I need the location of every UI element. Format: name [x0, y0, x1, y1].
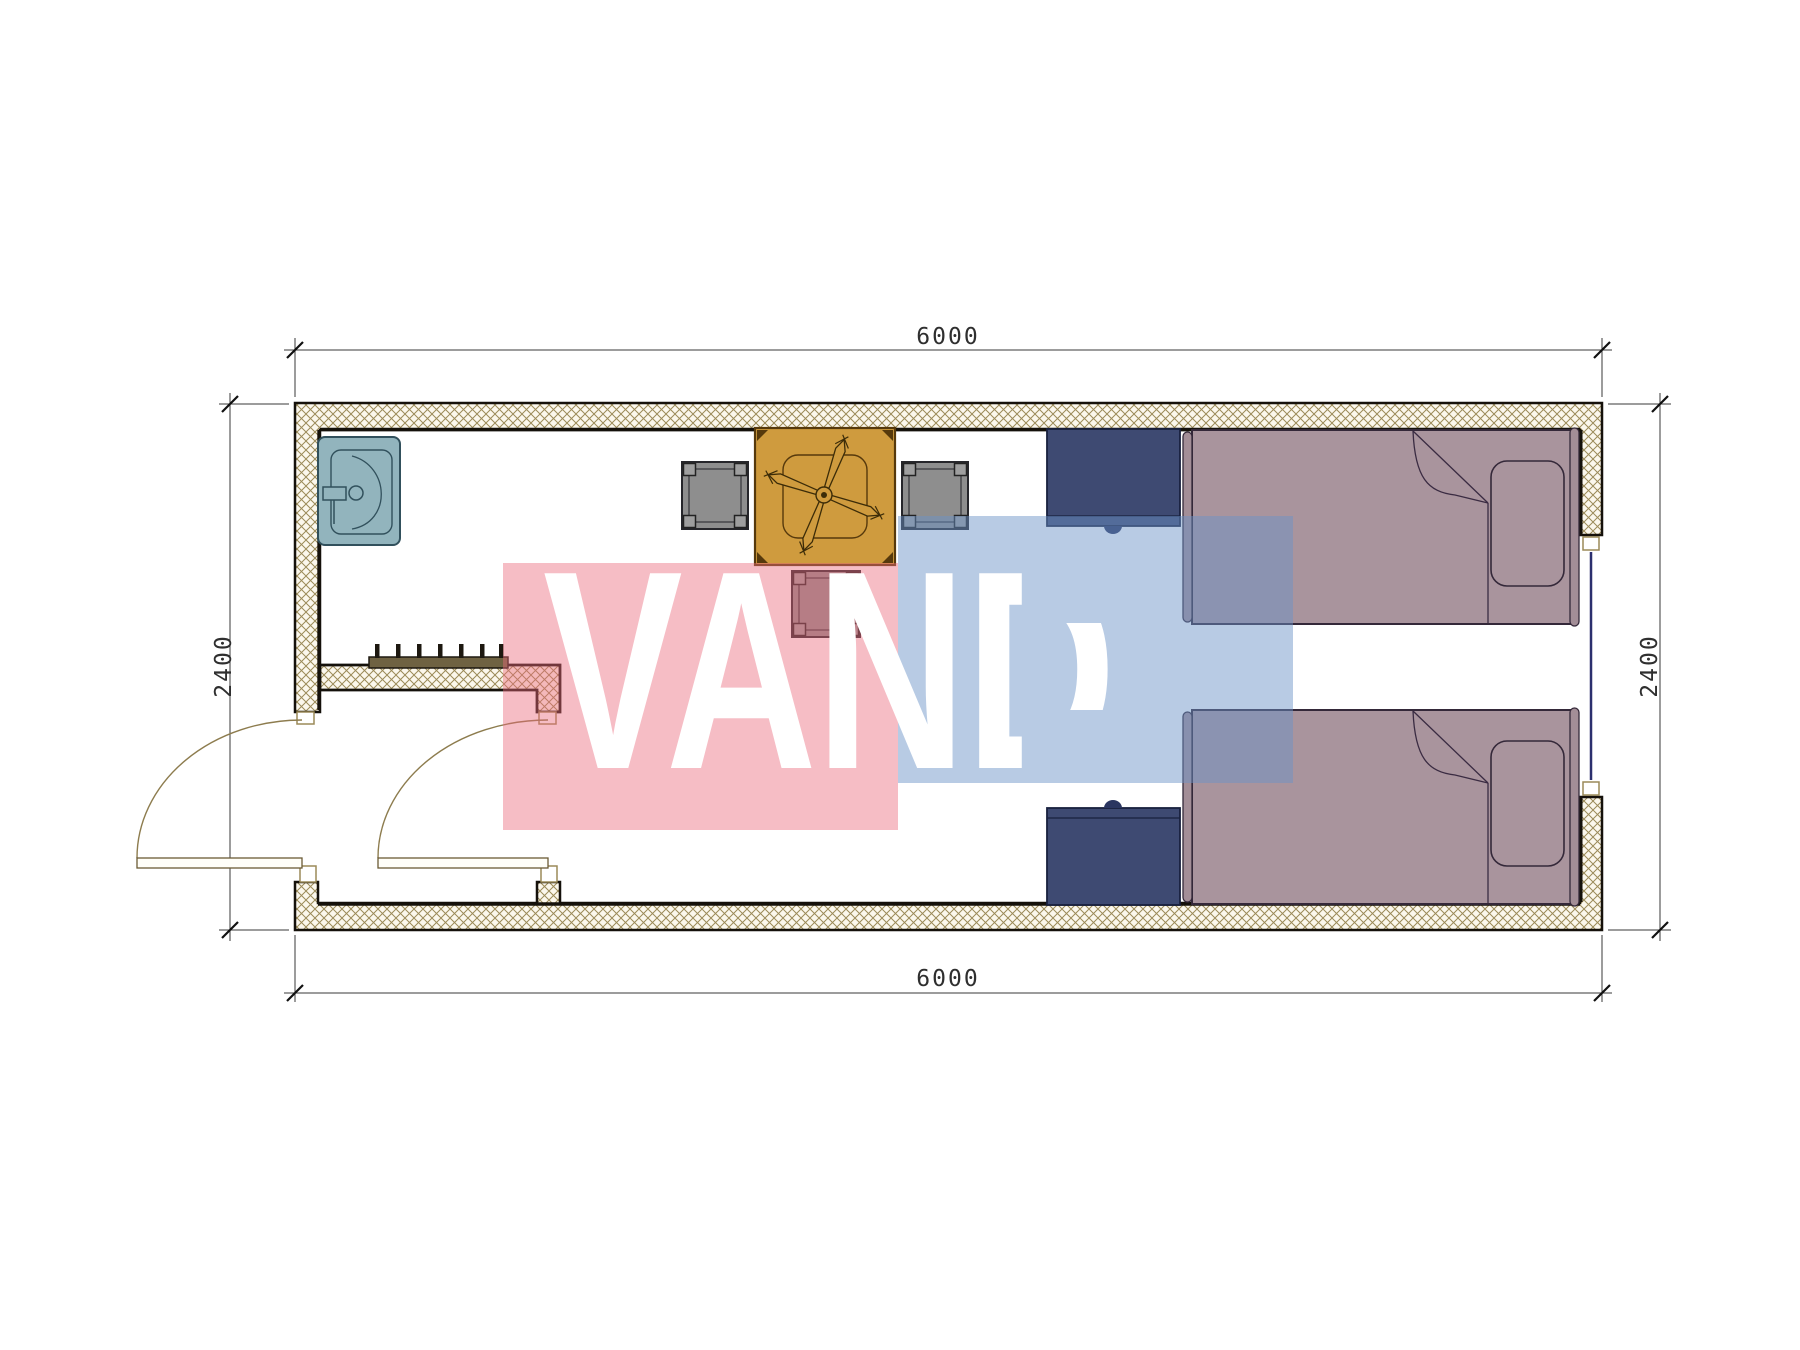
door-swing-arc-left	[137, 720, 302, 858]
pillow-icon	[1491, 461, 1564, 586]
door-icon	[137, 858, 302, 868]
dimension-label-right: 2400	[1637, 616, 1663, 716]
dimension-label-bottom: 6000	[898, 966, 998, 992]
nightstand-icon	[1047, 800, 1180, 905]
doors	[137, 720, 548, 868]
coat-rack-icon	[369, 644, 508, 668]
door-icon	[378, 858, 548, 868]
dimension-label-top: 6000	[898, 324, 998, 350]
sink-icon	[318, 437, 400, 545]
floor-plan-canvas: 6000 6000 2400 2400 VANDA	[0, 0, 1800, 1350]
dimension-label-left: 2400	[211, 616, 237, 716]
pillow-icon	[1491, 741, 1564, 866]
chair-icon	[682, 462, 748, 529]
